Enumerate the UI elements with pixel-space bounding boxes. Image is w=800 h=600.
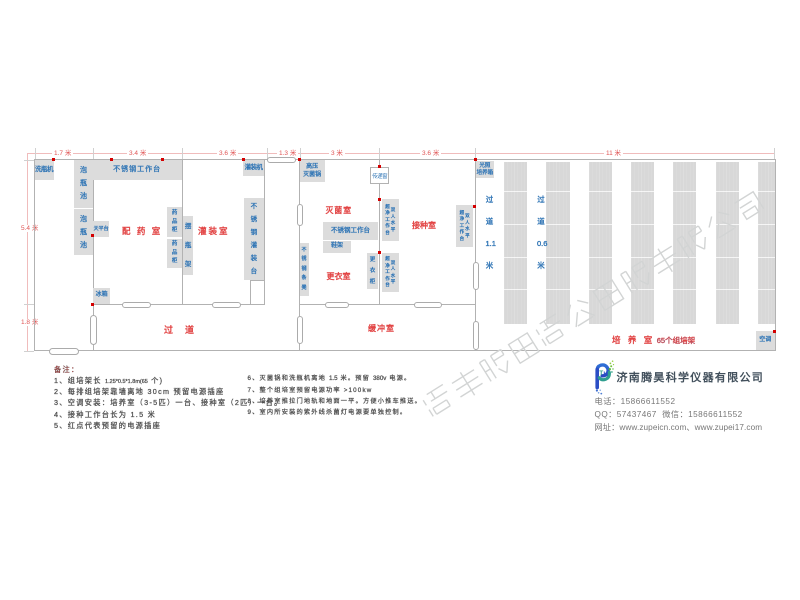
svg-text:H: H [603, 371, 608, 378]
